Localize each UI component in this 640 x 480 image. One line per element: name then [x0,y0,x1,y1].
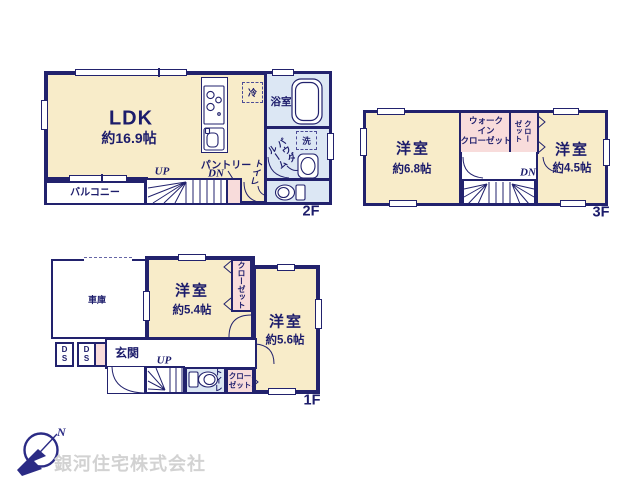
stairs-dn-label-3f: DN [520,167,536,180]
balcony-label: バルコニー [70,187,120,199]
ldk-label: LDK [109,108,153,131]
window-marker [327,133,334,160]
window-marker [272,69,294,76]
company-name: 銀河住宅株式会社 [54,450,206,476]
duct-space-2-label: DS [82,345,90,363]
window-marker [41,100,48,130]
window-marker [277,264,295,271]
balcony-door-marker [69,175,127,182]
entrance-porch [107,366,145,394]
window-marker [553,108,579,115]
window-marker [560,200,586,207]
bedroom-5-4-size: 約5.4帖 [173,304,212,317]
washer-label: 洗 [302,135,311,147]
floorplan-page: 冷 洗 LDK 約16.9帖 バルコニー UP DN パントリー 浴室 パウダ … [0,0,640,480]
window-marker [360,128,367,156]
entrance-closet-strip [94,342,107,367]
entrance-label: 玄関 [115,347,139,361]
bedroom-5-6-size: 約5.6帖 [266,334,305,347]
north-label: N [56,425,67,439]
ldk-size-label: 約16.9帖 [101,130,156,146]
refrigerator-label: 冷 [248,86,257,99]
bedroom-5-4-label: 洋室 [175,282,209,299]
staircase-3f [462,179,536,205]
refrigerator-box: 冷 [242,82,263,103]
floor-label-1f: 1F [304,393,321,410]
bedroom-5-6-label: 洋室 [269,313,303,330]
closet-1f-tall-label: クローゼット [237,261,245,309]
window-marker [268,388,296,395]
bathroom-label: 浴室 [271,96,292,108]
washer-box: 洗 [296,131,317,150]
closet-3f-label: クロー ゼット [514,120,533,143]
closet-1f-small-label: クロー ゼット [229,372,252,389]
window-marker [389,200,417,207]
window-marker [377,108,405,115]
pantry-closet [226,178,242,205]
window-marker [143,291,150,321]
toilet-label-1f: トイレ [214,368,222,392]
toilet-room-2f [264,178,332,205]
pantry-label: パントリー [201,160,252,172]
bedroom-6-8-size: 約6.8帖 [393,163,432,176]
garage-opening [84,257,132,263]
kitchen-counter [201,77,228,153]
bedroom-4-5-label: 洋室 [555,141,589,158]
stairs-up-label-1f: UP [157,355,172,368]
floor-label-2f: 2F [303,204,320,221]
bedroom-6-8-label: 洋室 [396,140,430,157]
staircase-1f [145,366,185,394]
window-mullion [158,68,160,77]
window-marker [603,139,610,166]
window-marker [315,299,322,329]
window-marker [75,69,187,76]
garage-label: 車庫 [88,295,106,305]
duct-space-1-label: DS [60,345,68,363]
stairs-up-label-2f: UP [155,166,170,179]
window-marker [178,254,206,261]
staircase-2f [145,178,228,205]
bedroom-6-8 [363,110,462,206]
walk-in-closet-label: ウォーク イン クローゼット [460,116,511,145]
window-mullion [101,174,103,183]
bedroom-4-5-size: 約4.5帖 [553,162,592,175]
floor-label-3f: 3F [593,205,610,222]
